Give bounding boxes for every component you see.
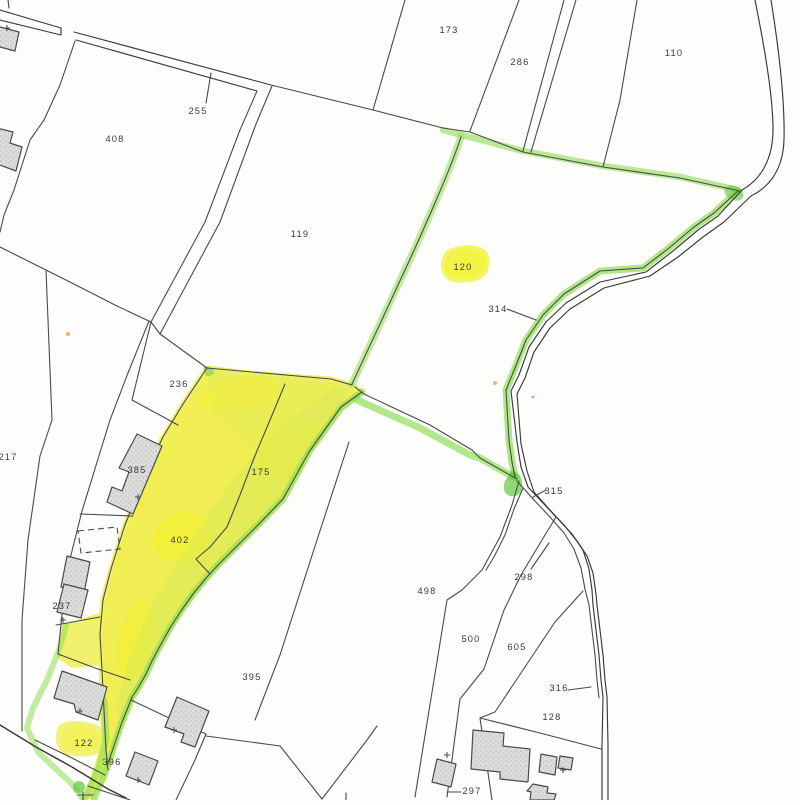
svg-text:175: 175 [251,467,270,477]
svg-text:236: 236 [169,379,188,389]
svg-text:396: 396 [102,757,121,767]
svg-text:408: 408 [105,134,124,144]
svg-text:315: 315 [544,486,563,496]
svg-text:110: 110 [665,48,683,58]
svg-text:217: 217 [0,452,18,462]
svg-text:498: 498 [417,586,436,596]
svg-text:286: 286 [510,57,529,67]
svg-text:385: 385 [127,465,146,475]
svg-text:120: 120 [453,262,472,272]
svg-text:173: 173 [439,25,458,35]
svg-text:119: 119 [291,229,309,239]
svg-text:316: 316 [549,683,568,693]
svg-text:128: 128 [542,712,561,722]
svg-text:237: 237 [52,601,71,611]
svg-text:314: 314 [488,304,507,314]
svg-text:500: 500 [461,634,480,644]
svg-text:395: 395 [242,672,261,682]
svg-text:297: 297 [462,786,481,796]
svg-text:605: 605 [507,642,526,652]
svg-text:402: 402 [170,535,189,545]
svg-text:122: 122 [74,738,93,748]
svg-text:255: 255 [188,106,207,116]
svg-text:298: 298 [514,572,533,582]
